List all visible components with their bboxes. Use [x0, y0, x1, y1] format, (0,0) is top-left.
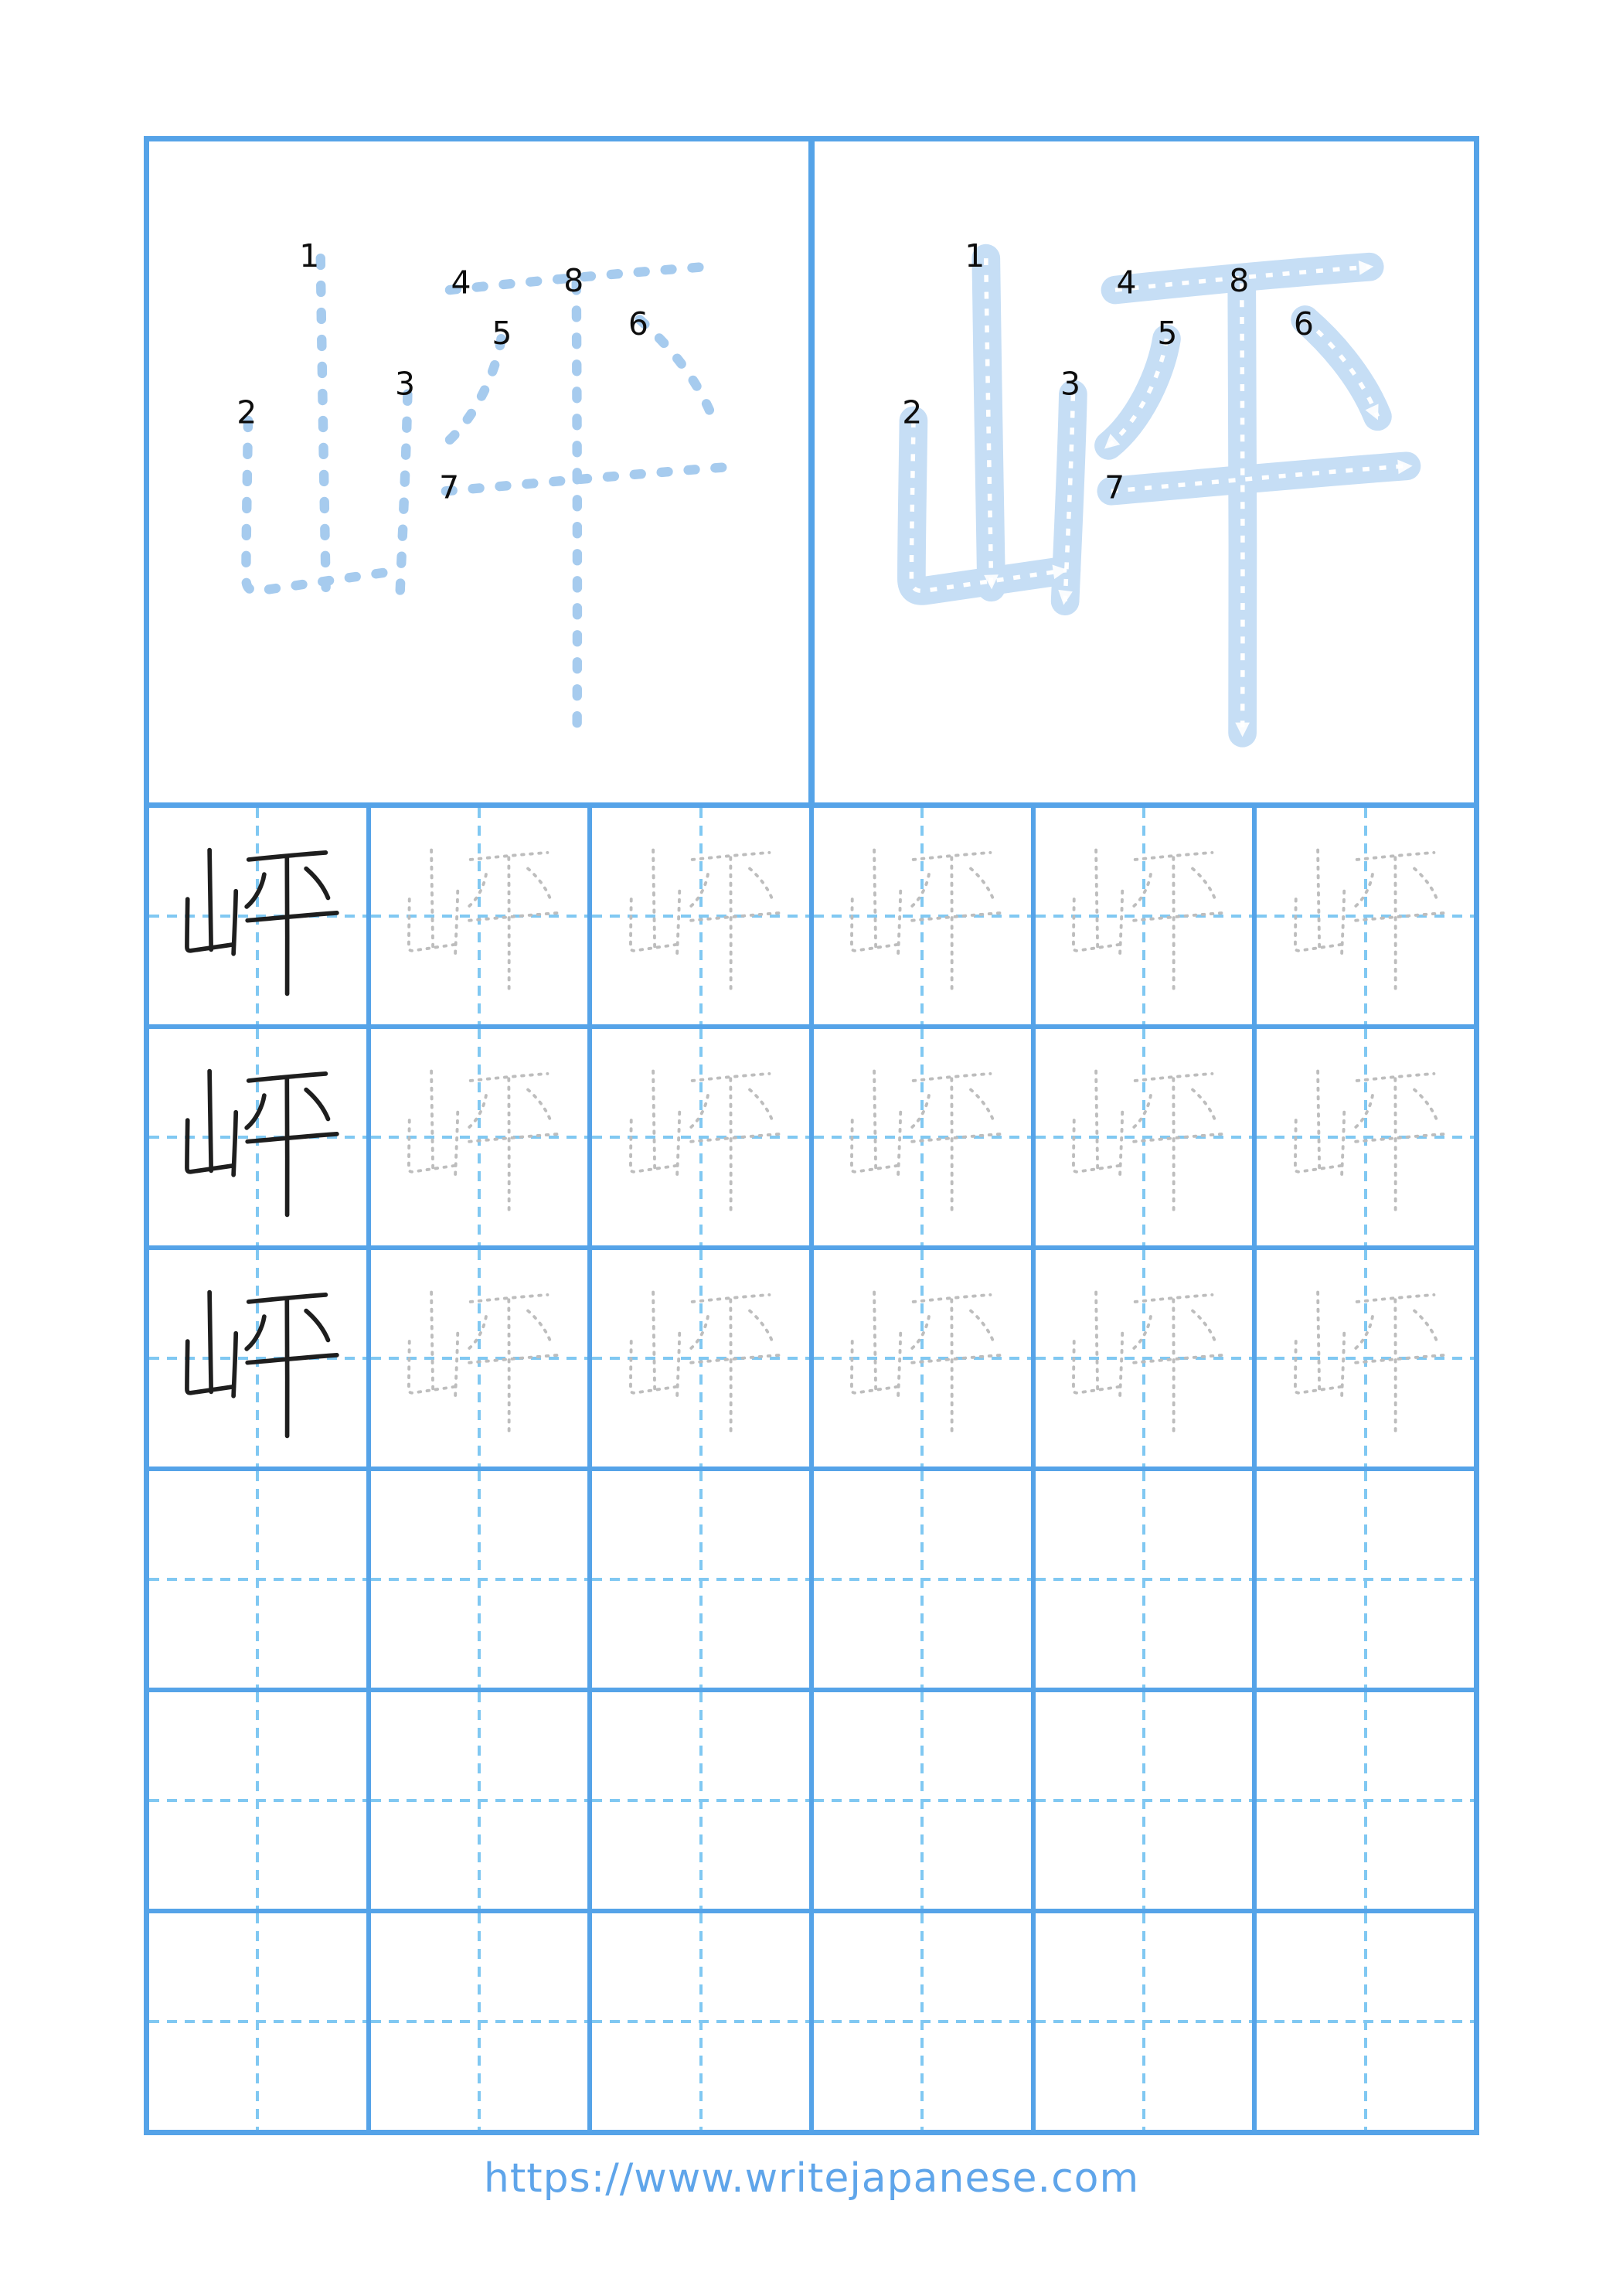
practice-cell	[1254, 806, 1476, 1027]
practice-cell	[369, 1469, 590, 1690]
guide-crosshair-horizontal	[814, 2020, 1031, 2023]
kanji-glyph-trace	[601, 1035, 801, 1236]
kanji-glyph-trace	[601, 1256, 801, 1457]
stroke-number-label: 2	[236, 393, 257, 431]
practice-cell	[590, 1469, 811, 1690]
guide-crosshair-horizontal	[1036, 1578, 1253, 1581]
stroke-order-section: 12345678 12345678	[144, 136, 1479, 802]
practice-cell	[147, 1911, 369, 2132]
practice-cell	[147, 806, 369, 1027]
practice-grid	[144, 802, 1479, 2135]
stroke-number-label: 5	[1157, 315, 1177, 352]
kanji-glyph-trace	[1044, 814, 1244, 1015]
stroke-guide-diagram: 12345678	[815, 141, 1474, 802]
guide-crosshair-horizontal	[1036, 2020, 1253, 2023]
guide-crosshair-horizontal	[149, 1578, 366, 1581]
guide-crosshair-horizontal	[149, 2020, 366, 2023]
practice-cell	[590, 1027, 811, 1248]
practice-cell	[1254, 1469, 1476, 1690]
guide-crosshair-horizontal	[592, 1578, 809, 1581]
worksheet-page: 12345678 12345678 https://www.writejap	[0, 0, 1623, 2296]
practice-cell	[590, 1248, 811, 1469]
stroke-number-label: 7	[1104, 469, 1125, 506]
practice-cell	[590, 1911, 811, 2132]
practice-cell	[369, 1248, 590, 1469]
stroke-number-label: 3	[1060, 366, 1080, 403]
practice-cell	[1033, 1690, 1255, 1911]
practice-cell	[1033, 1911, 1255, 2132]
stroke-number-label: 6	[628, 305, 648, 342]
practice-cell	[1254, 1911, 1476, 2132]
practice-cell	[590, 1690, 811, 1911]
stroke-number-label: 4	[451, 264, 471, 301]
stroke-direction-arrows	[984, 259, 1413, 737]
guide-crosshair-horizontal	[814, 1578, 1031, 1581]
guide-crosshair-horizontal	[149, 1799, 366, 1802]
kanji-glyph-trace	[822, 814, 1022, 1015]
stroke-order-diagram: 12345678	[149, 141, 808, 802]
guide-crosshair-horizontal	[371, 1578, 588, 1581]
practice-cell	[1033, 1469, 1255, 1690]
stroke-number-label: 8	[1229, 262, 1249, 299]
stroke-number-label: 2	[902, 393, 922, 431]
stroke-number-label: 7	[439, 469, 459, 506]
kanji-glyph-ink	[158, 814, 357, 1015]
kanji-glyph-ink	[158, 1256, 357, 1457]
kanji-glyph-trace	[1044, 1035, 1244, 1236]
stroke-guide-panel: 12345678	[808, 141, 1474, 802]
guide-crosshair-horizontal	[814, 1799, 1031, 1802]
practice-cell	[590, 806, 811, 1027]
guide-crosshair-horizontal	[371, 1799, 588, 1802]
practice-cell	[811, 1027, 1033, 1248]
guide-crosshair-horizontal	[592, 1799, 809, 1802]
kanji-glyph-trace	[601, 814, 801, 1015]
stroke-order-diagram-panel: 12345678	[149, 141, 808, 802]
stroke-number-label: 1	[965, 237, 985, 274]
stroke-number-label: 8	[563, 262, 584, 299]
practice-cell	[147, 1690, 369, 1911]
practice-cell	[811, 1469, 1033, 1690]
kanji-glyph-trace	[822, 1256, 1022, 1457]
kanji-glyph-trace	[379, 1035, 579, 1236]
practice-cell	[1033, 1248, 1255, 1469]
guide-crosshair-horizontal	[1257, 2020, 1474, 2023]
stroke-number-label: 5	[492, 315, 512, 352]
guide-crosshair-horizontal	[592, 2020, 809, 2023]
kanji-glyph-trace	[379, 814, 579, 1015]
practice-cell	[369, 1027, 590, 1248]
practice-cell	[811, 1248, 1033, 1469]
practice-cell	[369, 806, 590, 1027]
practice-cell	[1254, 1248, 1476, 1469]
site-url: https://www.writejapanese.com	[0, 2155, 1623, 2202]
guide-crosshair-horizontal	[371, 2020, 588, 2023]
kanji-glyph-trace	[1044, 1256, 1244, 1457]
kanji-glyph-trace	[1266, 1035, 1465, 1236]
practice-cell	[369, 1690, 590, 1911]
practice-cell	[147, 1248, 369, 1469]
stroke-number-label: 3	[395, 366, 415, 403]
practice-cell	[1254, 1027, 1476, 1248]
kanji-glyph-trace	[822, 1035, 1022, 1236]
practice-cell	[147, 1027, 369, 1248]
kanji-glyph-trace	[1266, 814, 1465, 1015]
practice-cell	[811, 1911, 1033, 2132]
stroke-number-label: 6	[1294, 305, 1314, 342]
stroke-number-label: 4	[1116, 264, 1136, 301]
practice-cell	[811, 1690, 1033, 1911]
guide-crosshair-horizontal	[1257, 1799, 1474, 1802]
kanji-glyph-trace	[379, 1256, 579, 1457]
practice-cell	[1033, 1027, 1255, 1248]
practice-cell	[1033, 806, 1255, 1027]
guide-crosshair-horizontal	[1036, 1799, 1253, 1802]
kanji-glyph-ink	[158, 1035, 357, 1236]
stroke-number-label: 1	[299, 237, 319, 274]
kanji-glyph-trace	[1266, 1256, 1465, 1457]
practice-cell	[1254, 1690, 1476, 1911]
guide-crosshair-horizontal	[1257, 1578, 1474, 1581]
practice-cell	[369, 1911, 590, 2132]
practice-cell	[811, 806, 1033, 1027]
practice-cell	[147, 1469, 369, 1690]
